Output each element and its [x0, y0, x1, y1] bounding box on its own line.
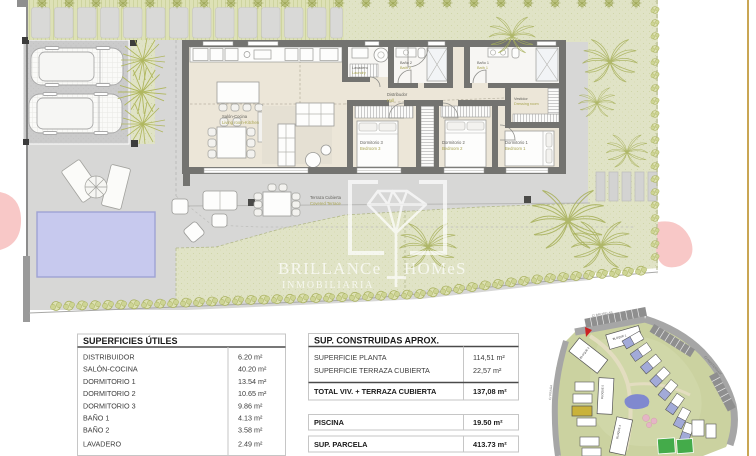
svg-text:DORMITORIO 3: DORMITORIO 3: [83, 401, 136, 410]
svg-text:Baño 1: Baño 1: [477, 61, 489, 65]
svg-text:114,51 m²: 114,51 m²: [473, 353, 505, 362]
svg-text:SUPERFICIES ÚTILES: SUPERFICIES ÚTILES: [83, 335, 178, 346]
svg-text:6.20 m²: 6.20 m²: [238, 353, 263, 362]
svg-text:19.50 m²: 19.50 m²: [473, 418, 503, 427]
svg-text:SUP. CONSTRUIDAS APROX.: SUP. CONSTRUIDAS APROX.: [314, 336, 439, 346]
svg-text:2.49 m²: 2.49 m²: [238, 440, 263, 449]
svg-text:137,08 m²: 137,08 m²: [473, 387, 507, 396]
svg-text:INMOBILIARIA: INMOBILIARIA: [282, 280, 374, 291]
svg-text:BAÑO 2: BAÑO 2: [83, 426, 109, 435]
svg-text:Bath 2: Bath 2: [400, 66, 411, 70]
svg-text:Dormitorio 1: Dormitorio 1: [505, 140, 528, 145]
svg-text:Dressing room: Dressing room: [514, 102, 539, 106]
svg-text:Dormitorio 3: Dormitorio 3: [360, 140, 383, 145]
svg-text:Bedroom 3: Bedroom 3: [360, 146, 381, 151]
svg-text:3.58 m²: 3.58 m²: [238, 426, 263, 435]
svg-text:SALÓN-COCINA: SALÓN-COCINA: [83, 365, 138, 374]
svg-text:Vestidor: Vestidor: [514, 97, 528, 101]
svg-text:13.54 m²: 13.54 m²: [238, 377, 267, 386]
svg-text:BAÑO 1: BAÑO 1: [83, 414, 109, 423]
svg-text:Bedroom 2: Bedroom 2: [442, 146, 463, 151]
svg-text:DORMITORIO 2: DORMITORIO 2: [83, 389, 136, 398]
svg-text:Terraza Cubierta: Terraza Cubierta: [310, 195, 342, 200]
svg-text:40.20 m²: 40.20 m²: [238, 365, 267, 374]
svg-text:HOMeS: HOMeS: [404, 259, 467, 278]
svg-text:SUP. PARCELA: SUP. PARCELA: [314, 440, 368, 449]
svg-text:DISTRIBUIDOR: DISTRIBUIDOR: [83, 353, 135, 362]
svg-text:Laundry: Laundry: [352, 71, 366, 75]
svg-text:Salón-Cocina: Salón-Cocina: [222, 114, 248, 119]
svg-text:DORMITORIO 1: DORMITORIO 1: [83, 377, 136, 386]
svg-text:SUPERFICIE PLANTA: SUPERFICIE PLANTA: [314, 353, 387, 362]
svg-text:4.13 m²: 4.13 m²: [238, 414, 263, 423]
svg-text:Baño 2: Baño 2: [400, 61, 412, 65]
svg-text:BRILLANCe: BRILLANCe: [278, 259, 381, 278]
svg-text:22,57 m²: 22,57 m²: [473, 366, 502, 375]
svg-text:Lavadero: Lavadero: [352, 66, 368, 70]
svg-text:PISCINA: PISCINA: [314, 418, 345, 427]
svg-text:Bedroom 1: Bedroom 1: [505, 146, 526, 151]
svg-text:10.65 m²: 10.65 m²: [238, 389, 267, 398]
svg-text:TOTAL VIV. + TERRAZA CUBIERTA: TOTAL VIV. + TERRAZA CUBIERTA: [314, 387, 437, 396]
svg-text:Covered Terrace: Covered Terrace: [310, 201, 342, 206]
svg-text:Living room-Kitchen: Living room-Kitchen: [222, 120, 260, 125]
svg-text:9.86 m²: 9.86 m²: [238, 401, 263, 410]
svg-text:Dormitorio 2: Dormitorio 2: [442, 140, 465, 145]
svg-text:413.73 m²: 413.73 m²: [473, 440, 507, 449]
svg-text:LAVADERO: LAVADERO: [83, 440, 121, 449]
svg-text:Hall: Hall: [387, 98, 394, 103]
svg-text:BLOQUE 5: BLOQUE 5: [600, 384, 605, 399]
svg-text:Bath 1: Bath 1: [477, 66, 488, 70]
svg-text:SUPERFICIE TERRAZA CUBIERTA: SUPERFICIE TERRAZA CUBIERTA: [314, 366, 430, 375]
svg-text:Distribudor: Distribudor: [387, 92, 408, 97]
